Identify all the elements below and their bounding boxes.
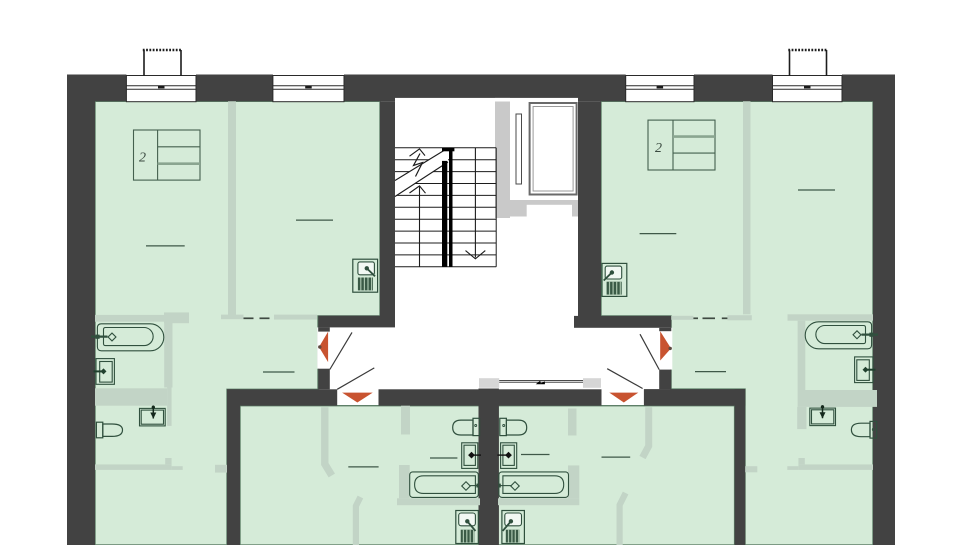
svg-text:2: 2 [655, 141, 662, 156]
svg-text:2: 2 [139, 151, 146, 166]
